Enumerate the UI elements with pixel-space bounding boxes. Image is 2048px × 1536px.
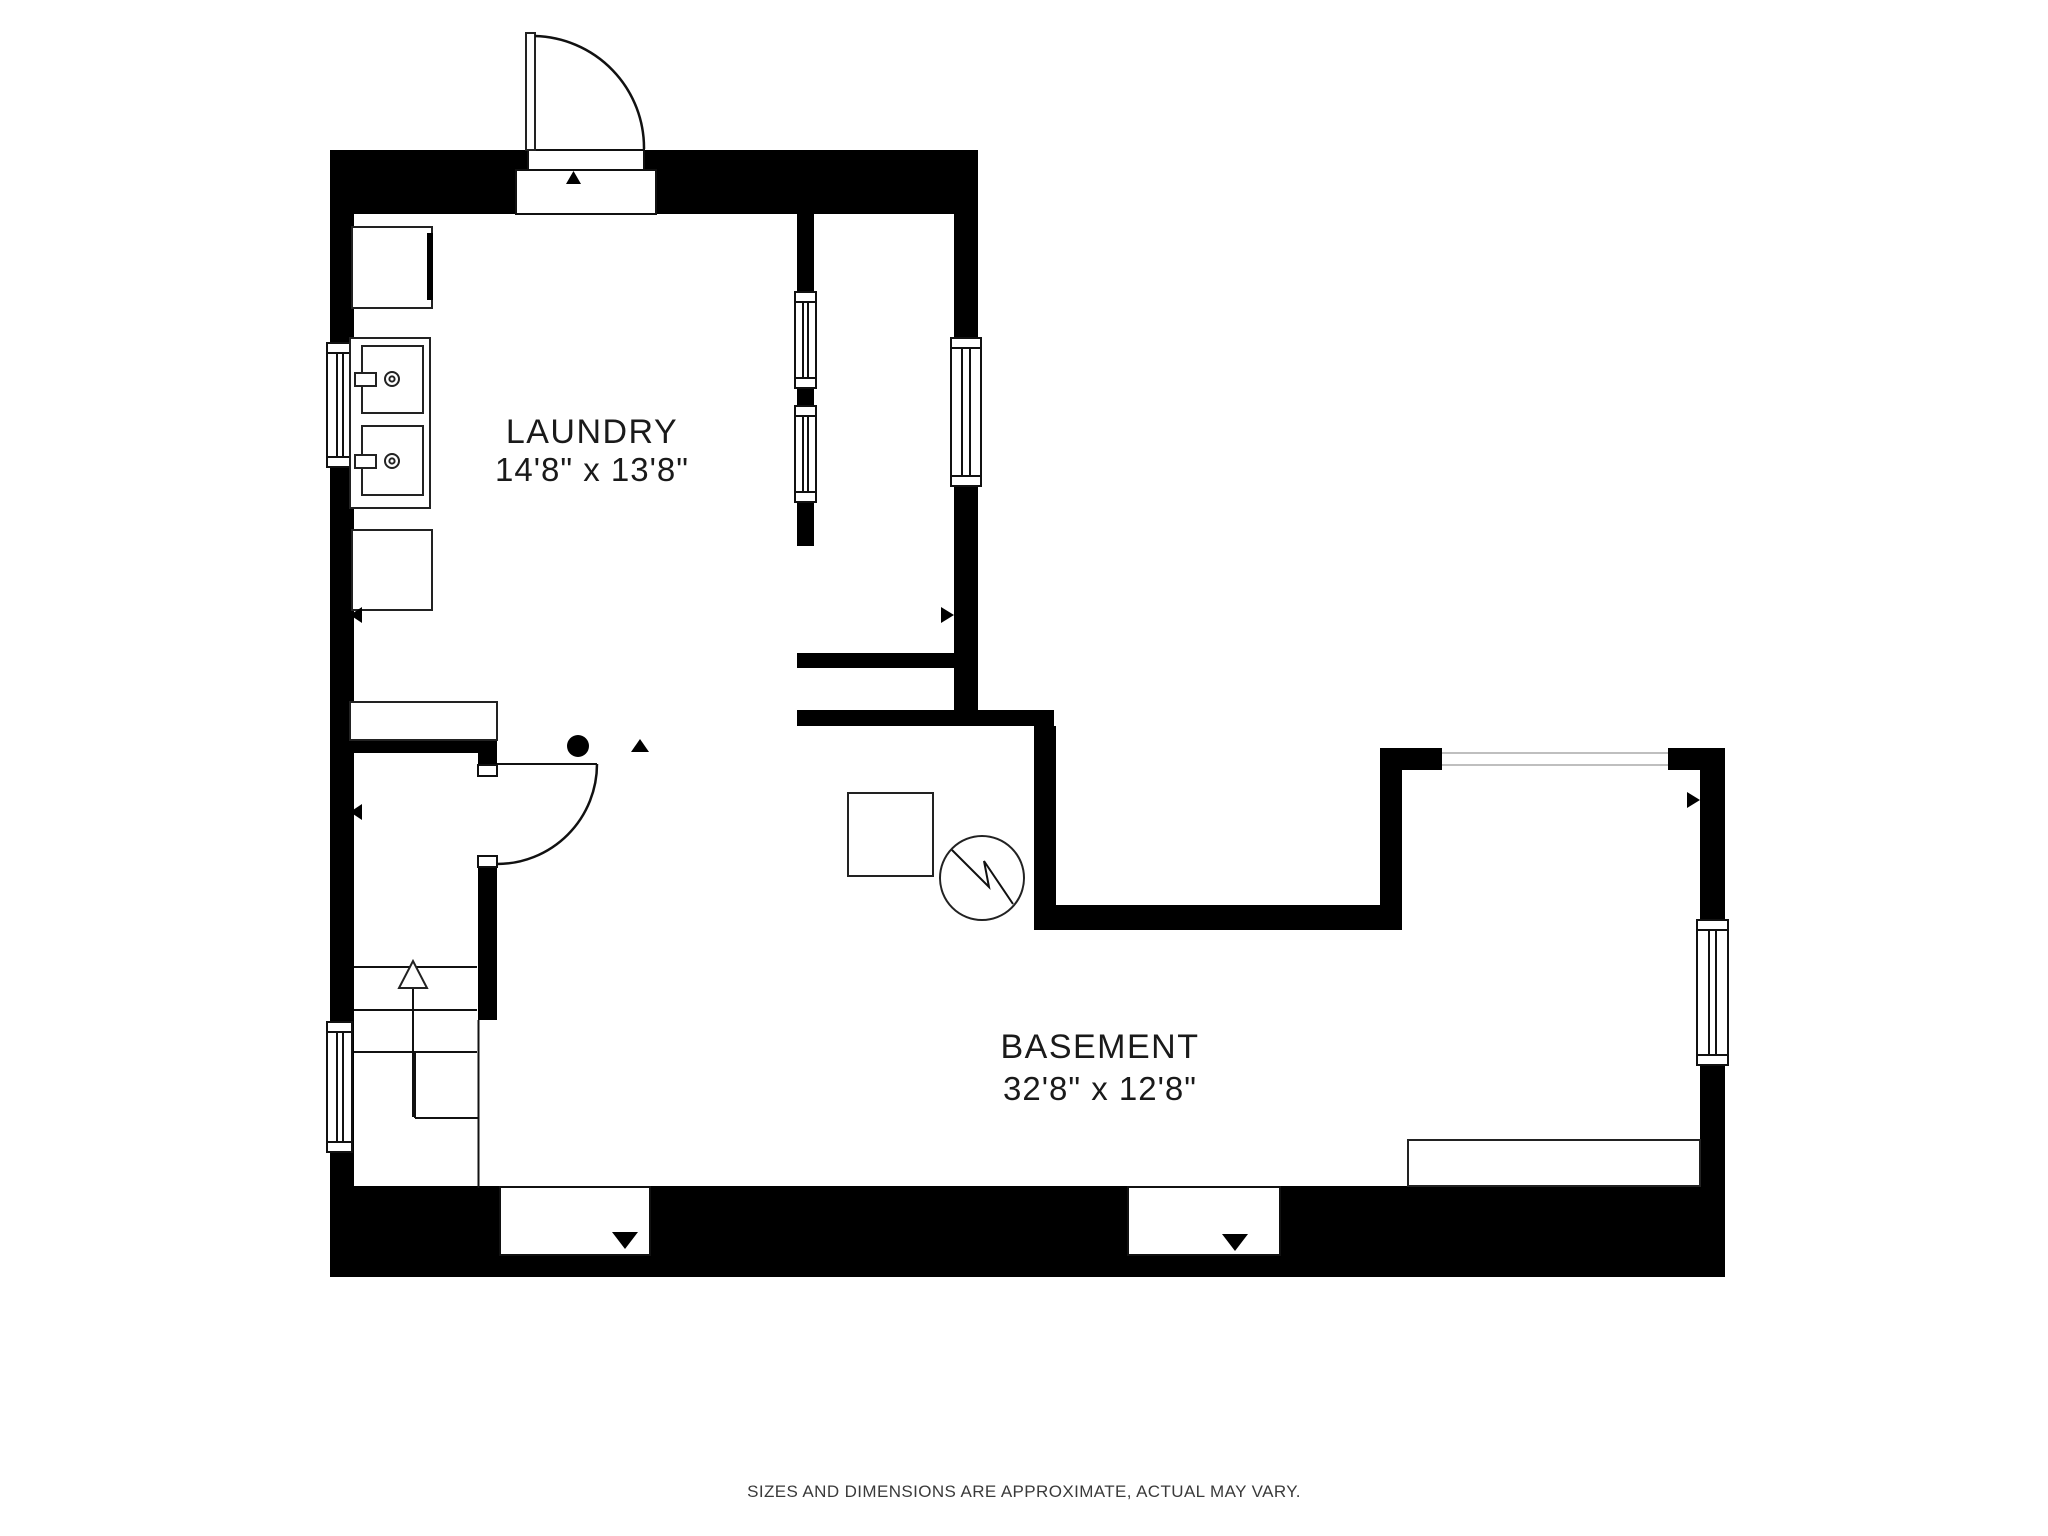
shelf-icon [1408, 1140, 1700, 1186]
basement-floor-plan: LAUNDRY 14'8" x 13'8" BASEMENT 32'8" x 1… [0, 0, 2048, 1536]
room-labels: LAUNDRY 14'8" x 13'8" BASEMENT 32'8" x 1… [495, 413, 1200, 1107]
stairs-up-icon [354, 961, 479, 1188]
door-leaf [526, 33, 535, 150]
window-left-lower [327, 1022, 352, 1152]
double-laundry-sink-icon [350, 338, 430, 508]
window-frame [795, 292, 816, 388]
window-frame [327, 343, 352, 467]
floor-drain-dot-icon [567, 735, 589, 757]
furnace-outline [940, 836, 1024, 920]
stair-closet-door [478, 764, 597, 867]
door-swing-arc [535, 36, 644, 149]
laundry-room-dimensions: 14'8" x 13'8" [495, 451, 689, 488]
window-left-upper [327, 343, 352, 467]
washer-box-icon [352, 227, 433, 308]
sink-drain-2-center [389, 458, 394, 463]
door-cap-top [478, 765, 497, 776]
washer-outline [352, 227, 432, 308]
bottom-left-doorway [500, 1187, 650, 1255]
washer-handle [427, 233, 433, 300]
laundry-room-label: LAUNDRY [506, 413, 678, 451]
wall-interior-h1 [797, 653, 954, 668]
wall-basement-left [1034, 726, 1056, 930]
wall-step-vertical [1380, 748, 1402, 930]
door-sill [528, 150, 644, 170]
door-gap [1128, 1187, 1280, 1255]
basement-room-dimensions: 32'8" x 12'8" [1003, 1070, 1197, 1107]
entry-door-top [516, 33, 656, 214]
sink-faucet-2 [355, 455, 376, 468]
wall-interior-h2 [797, 710, 1054, 726]
wall-stairs-right-upper [478, 740, 497, 765]
wall-step-horizontal [1034, 905, 1402, 930]
water-heater-square-icon [848, 793, 933, 876]
window-right-wall [1697, 920, 1728, 1065]
dryer-box-icon [352, 530, 432, 610]
laundry-right-wall-marker-triangle-icon [941, 607, 954, 623]
interior-glass-panel-1 [795, 292, 816, 388]
wall-stairs-right-lower [478, 867, 497, 1020]
window-gap [1442, 748, 1668, 770]
window-top-right [1442, 748, 1668, 770]
walls [330, 150, 1725, 1277]
door-swing-arc [497, 764, 597, 864]
basement-room-label: BASEMENT [1000, 1028, 1199, 1066]
bottom-right-doorway [1128, 1187, 1280, 1255]
wall-stairs-top [330, 740, 497, 753]
window-frame [951, 338, 981, 486]
door-gap [478, 765, 497, 867]
window-frame [327, 1022, 352, 1152]
window-frame [1697, 920, 1728, 1065]
right-wall-marker-triangle-icon [1687, 792, 1700, 808]
floor-marker-triangle-icon [631, 739, 649, 752]
sink-faucet-1 [355, 373, 376, 386]
sink-drain-1-center [389, 376, 394, 381]
window-frame [795, 406, 816, 502]
door-cap-bottom [478, 856, 497, 867]
interior-glass-panel-2 [795, 406, 816, 502]
stair-arrow-head [399, 961, 427, 988]
furnace-circle-icon [940, 836, 1024, 920]
counter-icon [350, 702, 497, 740]
floor-plan-canvas: LAUNDRY 14'8" x 13'8" BASEMENT 32'8" x 1… [0, 0, 2048, 1536]
window-laundry-right [951, 338, 981, 486]
door-recess [516, 170, 656, 214]
footer-disclaimer: SIZES AND DIMENSIONS ARE APPROXIMATE, AC… [747, 1482, 1301, 1501]
